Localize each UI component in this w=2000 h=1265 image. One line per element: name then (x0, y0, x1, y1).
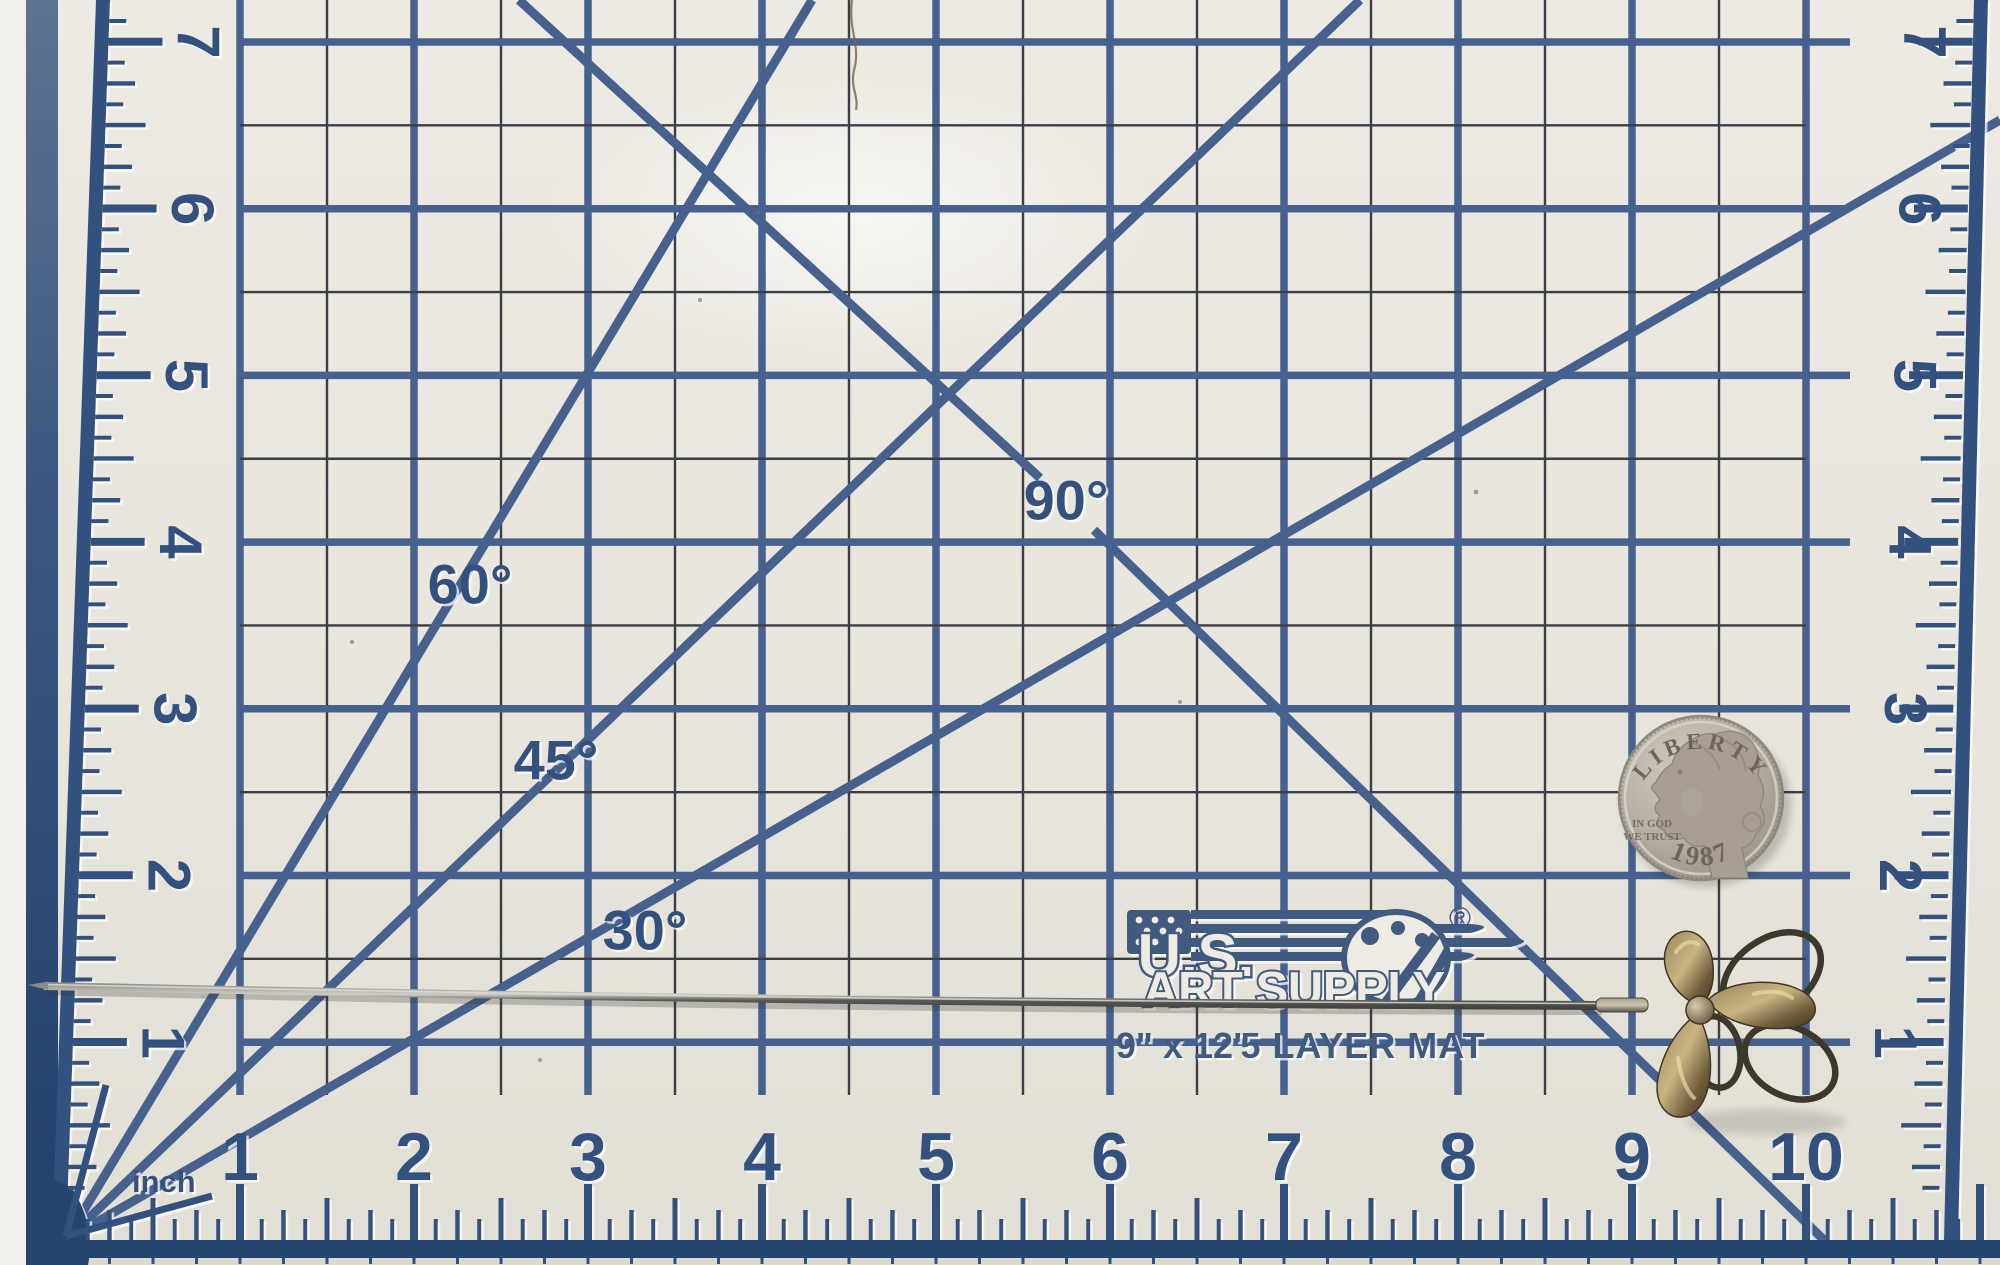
bottom-ruler-baseline (40, 1240, 2000, 1258)
pin-head-shadow (1686, 1109, 1846, 1135)
pin-ferrule (1596, 998, 1648, 1012)
bottom-scale-number: 7 (1265, 1119, 1303, 1195)
center-bead (1686, 996, 1714, 1024)
bottom-scale-number: 6 (1091, 1119, 1129, 1195)
bottom-scale-number: 9 (1613, 1119, 1651, 1195)
left-scale-number: 7 (165, 25, 232, 58)
right-scale-number: 4 (1877, 525, 1944, 559)
right-scale-number: 6 (1886, 192, 1953, 225)
left-scale-number: 5 (153, 359, 220, 392)
registered-mark: ® (1449, 902, 1471, 935)
right-scale-number: 3 (1872, 692, 1939, 725)
left-scale-number: 3 (141, 692, 208, 725)
mat-layer-label: 5 LAYER MAT (1240, 1025, 1485, 1066)
right-scale-number: 1 (1862, 1026, 1929, 1059)
left-scale-number: 2 (135, 859, 202, 892)
coin-motto-line1: IN GOD (1632, 818, 1672, 830)
angle-label: 30° (603, 899, 688, 962)
coin-motto-line2: WE TRUST (1623, 831, 1681, 843)
mat-photo: 90°60°45°30° 1234567891076543217654321 i… (0, 0, 2000, 1265)
angle-label: 90° (1024, 469, 1109, 532)
profile-eye (1678, 770, 1683, 775)
angle-label: 60° (428, 553, 513, 616)
left-scale-number: 1 (129, 1026, 196, 1059)
inch-unit-label: inch (132, 1164, 196, 1199)
left-scale-number: 4 (147, 525, 214, 559)
angle-label: 45° (514, 729, 599, 792)
bottom-scale-number: 3 (569, 1119, 607, 1195)
photo-cutting-mat-scene: 90°60°45°30° 1234567891076543217654321 i… (0, 0, 2000, 1265)
mat-size-label: 9" x 12" (1116, 1025, 1250, 1066)
bottom-scale-number: 1 (221, 1119, 259, 1195)
mat-bottom-bevel (40, 1258, 2000, 1265)
right-scale-number: 7 (1891, 25, 1958, 58)
bottom-scale-number: 5 (917, 1119, 955, 1195)
bottom-scale-number: 8 (1439, 1119, 1477, 1195)
bottom-scale-number: 4 (743, 1119, 781, 1195)
right-scale-number: 5 (1882, 359, 1949, 392)
right-scale-number: 2 (1867, 859, 1934, 892)
bottom-scale-number: 2 (395, 1119, 433, 1195)
mat-left-edge (26, 0, 58, 1265)
left-scale-number: 6 (159, 192, 226, 225)
